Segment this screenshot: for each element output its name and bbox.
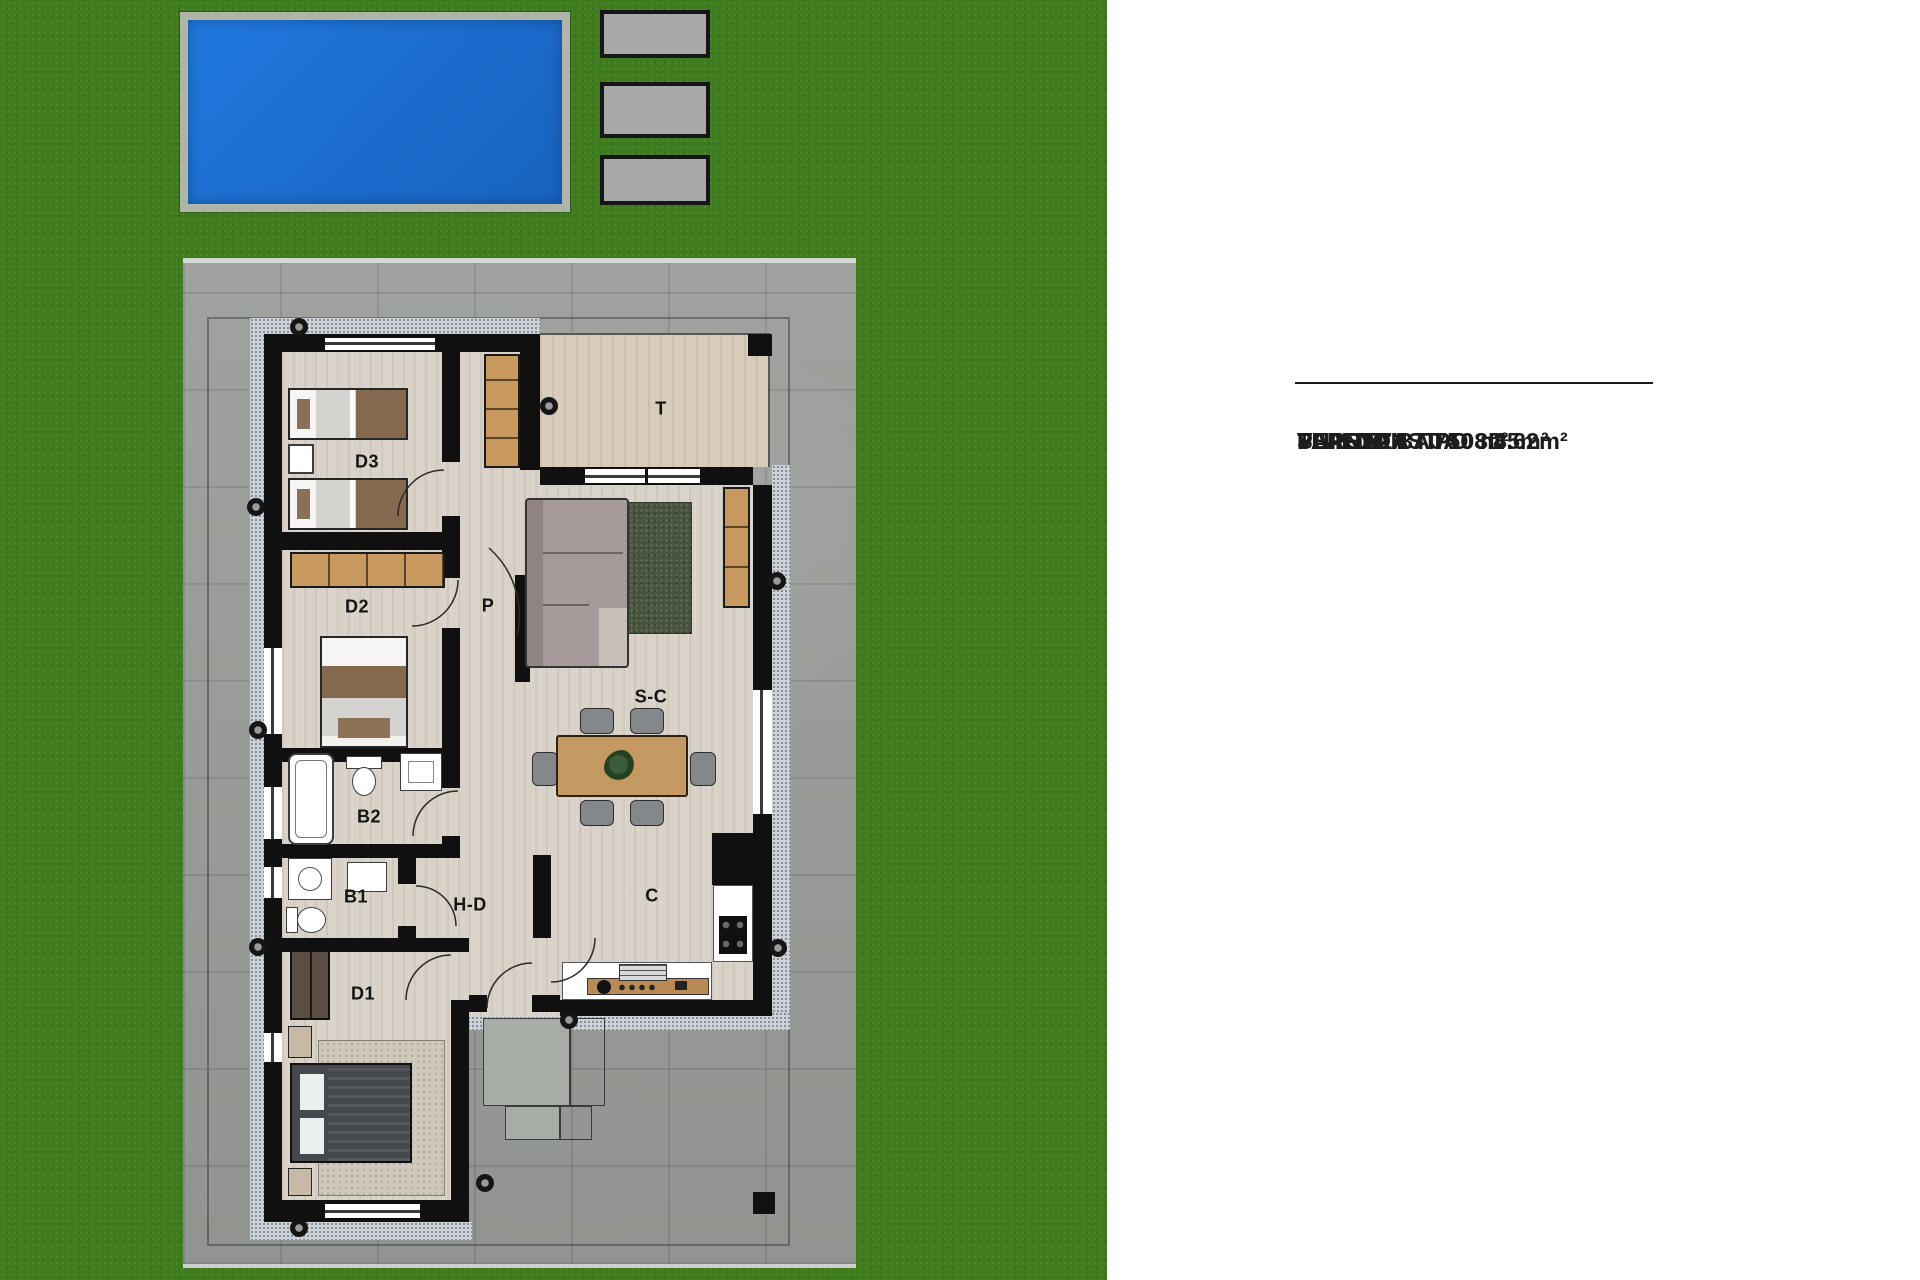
room-label-b1: B1 xyxy=(344,887,368,908)
door-arc-d2 xyxy=(412,580,458,626)
door-arc-d1 xyxy=(406,955,451,1000)
info-divider xyxy=(1295,382,1653,384)
room-label-p: P xyxy=(482,596,495,617)
door-arc-b2 xyxy=(413,791,458,836)
room-label-hd: H-D xyxy=(453,895,487,916)
site-plan-image: D3 D2 B2 B1 D1 P T S-C H-D C VIVIENDA TI… xyxy=(0,0,1920,1280)
room-label-d3: D3 xyxy=(355,452,379,473)
room-label-d1: D1 xyxy=(351,984,375,1005)
door-arcs xyxy=(0,0,1920,1280)
door-arc-kitchen xyxy=(551,938,595,982)
door-arc-d3 xyxy=(398,470,444,516)
room-label-b2: B2 xyxy=(357,807,381,828)
door-arc-b1 xyxy=(416,886,456,926)
door-arc-entrance xyxy=(487,963,532,1008)
room-label-t: T xyxy=(655,399,667,420)
info-line-parcel: PARCELA 750 m² xyxy=(1297,426,1509,457)
room-label-c: C xyxy=(645,886,659,907)
door-arc-hall xyxy=(489,548,519,636)
room-label-sc: S-C xyxy=(635,687,668,708)
room-label-d2: D2 xyxy=(345,597,369,618)
